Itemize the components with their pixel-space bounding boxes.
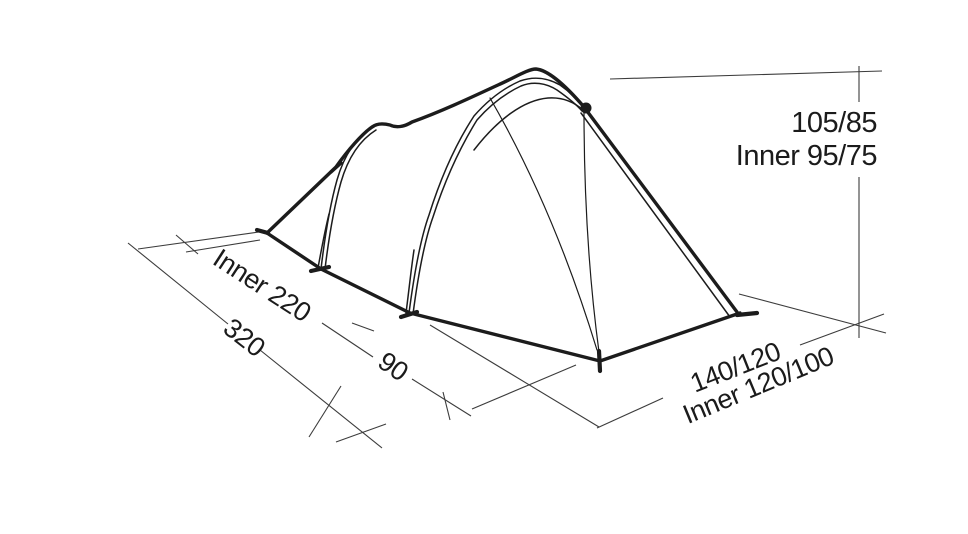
- extension-line: [138, 232, 259, 249]
- ground-edge-right: [600, 313, 740, 361]
- front-pole-sleeve: [318, 214, 329, 268]
- width-dimension-line: [597, 398, 663, 428]
- tent-drawing: [257, 69, 757, 371]
- rear-sleeve-inner-line: [581, 113, 730, 317]
- height-reference-line: [610, 71, 882, 79]
- extension-line: [472, 365, 576, 409]
- ground-edge-front: [410, 313, 600, 361]
- front-corner-stake: [599, 351, 600, 371]
- main-pole-stake: [401, 312, 417, 317]
- dimension-tick: [443, 392, 450, 420]
- rear-corner-stake: [737, 313, 757, 315]
- vestibule-depth-label: 90: [373, 346, 414, 387]
- dimension-labels: 105/85 Inner 95/75 Inner 220 320 90 140/…: [208, 107, 877, 430]
- diagram-canvas: 105/85 Inner 95/75 Inner 220 320 90 140/…: [0, 0, 968, 534]
- dimension-tick: [336, 424, 386, 442]
- total-length-dimension-line: [260, 350, 382, 448]
- vestibule-dimension-line: [412, 379, 471, 416]
- tent-dimension-diagram: 105/85 Inner 95/75 Inner 220 320 90 140/…: [0, 0, 968, 534]
- extension-line: [739, 294, 886, 333]
- total-length-label: 320: [218, 312, 271, 362]
- total-length-dimension-line: [128, 243, 228, 324]
- front-pole-arc: [321, 127, 374, 269]
- inner-height-dimension-label: Inner 95/75: [736, 140, 877, 172]
- height-dimension-label: 105/85: [791, 107, 877, 139]
- front-panel-seam: [490, 98, 597, 350]
- dimension-tick: [176, 235, 198, 254]
- extension-line: [352, 323, 374, 331]
- ridge-junction-knob: [581, 103, 592, 114]
- front-stake: [257, 230, 268, 233]
- main-pole-arc-inner: [413, 83, 582, 314]
